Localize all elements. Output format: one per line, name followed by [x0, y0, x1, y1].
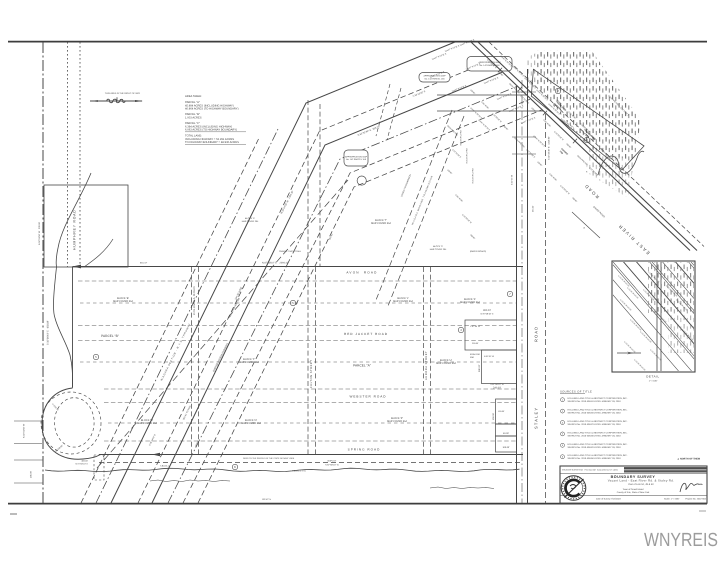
- svg-text:WNYREIS: WNYREIS: [644, 530, 718, 551]
- svg-text:SOURCES OF TITLE: SOURCES OF TITLE: [560, 391, 592, 394]
- svg-text:No. 142 PARCEL 156: No. 142 PARCEL 156: [425, 78, 446, 81]
- svg-text:SEARCH No. 2010-40634 DATED JA: SEARCH No. 2010-40634 DATED JANUARY 28, …: [568, 412, 622, 415]
- svg-text:Part of Lots 52, 49 & 50: Part of Lots 52, 49 & 50: [628, 483, 654, 486]
- svg-text:N 02°02' W: N 02°02' W: [484, 355, 494, 358]
- svg-text:MAP COVER 364: MAP COVER 364: [387, 420, 407, 423]
- svg-text:AURORA STREET: AURORA STREET: [425, 351, 428, 380]
- svg-text:MAP COVER 364: MAP COVER 364: [371, 222, 391, 225]
- svg-text:S 02°06'40" E 650.89': S 02°06'40" E 650.89': [47, 320, 50, 345]
- svg-text:N 87°58'10" E: N 87°58'10" E: [76, 462, 89, 465]
- svg-text:240.00': 240.00': [493, 387, 502, 390]
- svg-text:MAP COVER 364: MAP COVER 364: [241, 422, 261, 425]
- svg-text:HOLLAND LAND TITLE & ABSTRACT: HOLLAND LAND TITLE & ABSTRACT CORPORATIO…: [568, 420, 628, 423]
- svg-text:HUMPHREY ROAD: HUMPHREY ROAD: [73, 210, 77, 250]
- svg-text:PARCEL "B": PARCEL "B": [101, 334, 119, 338]
- svg-text:SPRING ROAD: SPRING ROAD: [348, 448, 381, 452]
- svg-text:Town of Grand Island: Town of Grand Island: [623, 488, 644, 491]
- svg-text:SEARCH No. 2010-40633 DATED JA: SEARCH No. 2010-40633 DATED JANUARY 28, …: [568, 434, 622, 437]
- svg-text:165.00': 165.00': [30, 470, 33, 478]
- svg-text:264.00': 264.00': [532, 205, 535, 212]
- svg-text:HOLLAND LAND TITLE & ABSTRACT: HOLLAND LAND TITLE & ABSTRACT CORPORATIO…: [568, 397, 628, 400]
- svg-text:FND: FND: [470, 356, 475, 359]
- svg-text:MAP COVER 364: MAP COVER 364: [460, 301, 480, 304]
- svg-text:WEBSTER ROAD: WEBSTER ROAD: [349, 395, 386, 399]
- svg-text:1.003 ACRES: 1.003 ACRES: [185, 116, 202, 119]
- svg-text:100.00': 100.00': [502, 446, 510, 449]
- svg-text:124.07' N 53°32' E: 124.07' N 53°32' E: [459, 130, 462, 146]
- svg-text:400.50': 400.50': [82, 459, 89, 462]
- svg-text:SEARCH No. 2010-40631 DATED JA: SEARCH No. 2010-40631 DATED JANUARY 28, …: [568, 400, 622, 403]
- svg-text:915.47': 915.47': [140, 262, 148, 265]
- svg-text:APPROPRIATION MAP: APPROPRIATION MAP: [345, 155, 368, 158]
- svg-text:N 02°01'50" W 330.00': N 02°01'50" W 330.00': [38, 221, 41, 245]
- svg-text:MAP COVER 364: MAP COVER 364: [113, 300, 133, 303]
- svg-text:S 02°33'40" E 1319.80': S 02°33'40" E 1319.80': [548, 136, 551, 160]
- svg-text:S 87°58'10" W: S 87°58'10" W: [490, 383, 503, 386]
- svg-text:MAP COVER 364: MAP COVER 364: [242, 220, 259, 223]
- svg-text:162.42' N: 162.42' N: [262, 498, 271, 501]
- svg-text:OWNER: TWP 5-TRAIL: OWNER: TWP 5-TRAIL: [279, 250, 302, 253]
- svg-text:AREA TABLE:: AREA TABLE:: [185, 95, 202, 98]
- svg-text:MAP COVER 364: MAP COVER 364: [393, 300, 413, 303]
- svg-text:1" = 100': 1" = 100': [649, 379, 658, 382]
- svg-text:Scale: 1" = 300': Scale: 1" = 300': [664, 498, 680, 501]
- svg-text:(PAPER ROADS): (PAPER ROADS): [470, 250, 487, 253]
- svg-text:MAP COVER 364: MAP COVER 364: [430, 248, 447, 251]
- svg-text:RED JACKET ROAD: RED JACKET ROAD: [344, 332, 388, 336]
- svg-text:N 02°01'50" W: N 02°01'50" W: [23, 423, 26, 438]
- svg-text:AVON ROAD: AVON ROAD: [346, 270, 377, 274]
- svg-text:HOLLAND LAND TITLE & ABSTRACT: HOLLAND LAND TITLE & ABSTRACT CORPORATIO…: [568, 431, 628, 434]
- svg-text:40.864 ACRES (TO HIGHWAY BOUND: 40.864 ACRES (TO HIGHWAY BOUNDARY): [185, 108, 239, 111]
- svg-text:N 02°33' W: N 02°33' W: [511, 175, 514, 185]
- svg-text:HOLLAND LAND TITLE & ABSTRACT: HOLLAND LAND TITLE & ABSTRACT CORPORATIO…: [568, 454, 628, 457]
- svg-text:300.00': 300.00': [483, 309, 492, 312]
- svg-text:No. 142 PARCEL 156: No. 142 PARCEL 156: [346, 158, 367, 161]
- svg-text:County of Erie, State of New Y: County of Erie, State of New York: [617, 491, 650, 494]
- svg-text:124.07' N 53°32' E: 124.07' N 53°32' E: [465, 148, 468, 164]
- svg-text:S 87°58'10" W: S 87°58'10" W: [325, 463, 338, 466]
- svg-text:MAP COVER 364: MAP COVER 364: [436, 362, 456, 365]
- svg-text:SEARCH No. 2010-40635 DATED JA: SEARCH No. 2010-40635 DATED JANUARY 28, …: [568, 457, 622, 460]
- svg-text:200.00': 200.00': [472, 342, 479, 345]
- svg-text:150.00': 150.00': [492, 412, 495, 420]
- svg-text:N 87°58'10" E 2094.43': N 87°58'10" E 2094.43': [262, 262, 289, 265]
- svg-text:IRON ROD: IRON ROD: [470, 353, 481, 356]
- svg-text:KRUEGER SURVEYING P.O. Box 3: KRUEGER SURVEYING P.O. Box 332 East Amhe…: [562, 469, 618, 472]
- svg-text:SEARCH No. 2010-40637 DATED JA: SEARCH No. 2010-40637 DATED JANUARY 28, …: [568, 423, 622, 426]
- svg-text:6.063 ACRES (TO HIGHWAY BOUNDA: 6.063 ACRES (TO HIGHWAY BOUNDARY): [185, 129, 237, 132]
- svg-text:TO HIGHWAY BOUNDARY = 48.930 A: TO HIGHWAY BOUNDARY = 48.930 ACRES: [185, 141, 239, 144]
- svg-text:Date of Survey 7/14/2022: Date of Survey 7/14/2022: [596, 498, 622, 501]
- svg-text:124.07' N 53°32' E: 124.07' N 53°32' E: [471, 168, 474, 184]
- svg-text:DETAIL: DETAIL: [646, 375, 660, 379]
- svg-text:FULTON STREET: FULTON STREET: [310, 360, 313, 388]
- svg-text:BLOCK 'D': BLOCK 'D': [245, 217, 256, 220]
- svg-text:HOLLAND LAND TITLE & ABSTRACT: HOLLAND LAND TITLE & ABSTRACT CORPORATIO…: [568, 409, 628, 412]
- svg-text:MAP COVER 364: MAP COVER 364: [137, 422, 157, 425]
- svg-text:S.BLDG.L: S.BLDG.L: [160, 465, 170, 468]
- svg-text:HOLLAND LAND TITLE & ABSTRACT: HOLLAND LAND TITLE & ABSTRACT CORPORATIO…: [568, 443, 628, 446]
- svg-text:MAP COVER 364: MAP COVER 364: [239, 361, 259, 364]
- svg-text:SEARCH No. 2010-40632 DATED JA: SEARCH No. 2010-40632 DATED JANUARY 28, …: [568, 446, 622, 449]
- svg-text:Project No. 2022-652: Project No. 2022-652: [685, 498, 706, 501]
- svg-text:N 87°58'10" E: N 87°58'10" E: [481, 312, 495, 315]
- svg-text:240.00': 240.00': [478, 364, 481, 372]
- svg-text:▲ NORTH OF THEM: ▲ NORTH OF THEM: [677, 458, 700, 461]
- svg-text:S.BLDG.L 1-74: S.BLDG.L 1-74: [292, 469, 306, 472]
- svg-text:BUPLOT: BUPLOT: [328, 460, 337, 463]
- svg-text:BLOCK 'S': BLOCK 'S': [433, 245, 443, 248]
- svg-text:50.00': 50.00': [503, 432, 509, 435]
- svg-text:STALEY: STALEY: [534, 407, 539, 429]
- svg-text:THIS AREA IS THE RIGHT OF WAY: THIS AREA IS THE RIGHT OF WAY: [105, 92, 141, 95]
- svg-text:PARCEL "A": PARCEL "A": [353, 364, 371, 368]
- svg-text:S 87°58' W: S 87°58' W: [470, 325, 480, 328]
- svg-text:DEED TO THE PEOPLE OF THE STAT: DEED TO THE PEOPLE OF THE STATE OF NEW Y…: [243, 457, 295, 460]
- svg-text:100.00': 100.00': [498, 410, 505, 413]
- svg-text:ROAD: ROAD: [534, 326, 539, 342]
